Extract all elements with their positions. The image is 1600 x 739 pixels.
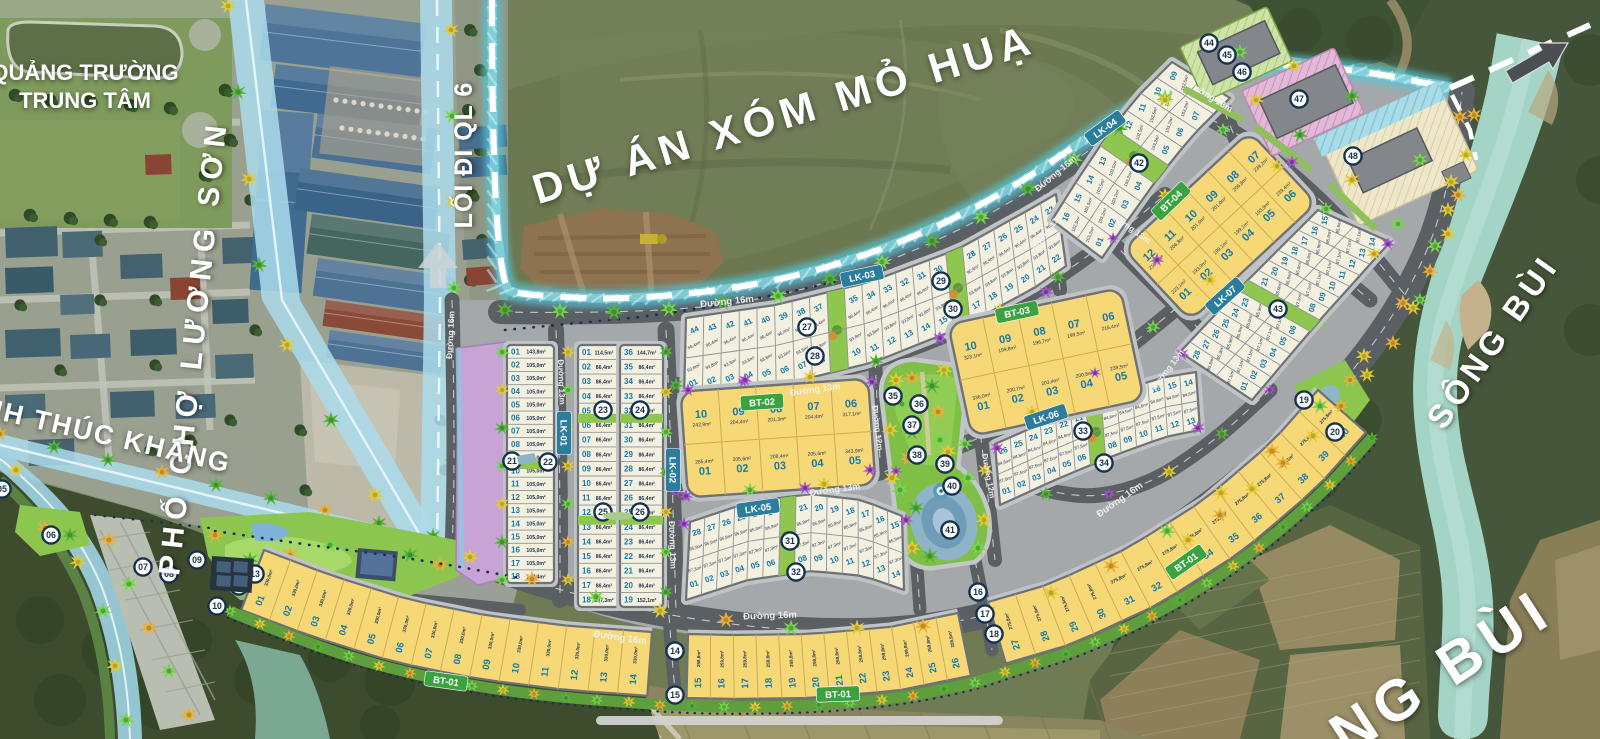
svg-text:TRUNG TÂM: TRUNG TÂM [19,88,151,113]
svg-text:152,1m²: 152,1m² [637,598,657,604]
svg-text:18: 18 [989,629,999,639]
svg-text:105,0m²: 105,0m² [526,548,546,554]
svg-text:03: 03 [1045,385,1059,399]
svg-text:16: 16 [717,678,728,689]
svg-text:105,0m²: 105,0m² [526,416,546,422]
svg-text:24: 24 [635,405,645,415]
svg-text:05: 05 [511,400,520,409]
svg-text:11: 11 [582,494,591,503]
svg-text:40: 40 [947,481,957,491]
svg-text:17: 17 [980,609,990,619]
svg-text:10: 10 [212,601,222,611]
svg-text:06: 06 [1101,310,1115,324]
svg-text:14: 14 [628,673,640,685]
svg-text:05: 05 [848,455,861,468]
svg-text:16: 16 [582,566,591,575]
svg-text:02: 02 [511,361,520,370]
svg-text:23: 23 [598,405,608,415]
svg-text:36: 36 [914,399,924,409]
svg-text:114,5m²: 114,5m² [594,350,613,356]
svg-text:86,4m²: 86,4m² [638,379,655,385]
svg-text:45: 45 [1222,50,1232,60]
svg-text:09: 09 [582,465,591,474]
svg-text:86,4m²: 86,4m² [638,394,655,400]
svg-text:LK-02: LK-02 [666,457,677,483]
svg-text:30: 30 [624,435,633,444]
svg-text:07: 07 [582,435,591,444]
svg-text:14: 14 [582,537,591,546]
svg-text:13: 13 [511,506,520,515]
svg-text:42: 42 [1134,158,1144,168]
svg-text:16: 16 [511,546,520,555]
svg-text:39: 39 [940,459,950,469]
svg-text:18: 18 [764,678,775,689]
svg-text:22: 22 [543,457,553,467]
svg-text:03: 03 [773,460,786,473]
svg-text:44: 44 [1204,38,1214,48]
svg-text:19: 19 [787,677,799,688]
svg-text:20: 20 [624,581,633,590]
svg-text:86,4m²: 86,4m² [596,423,613,429]
svg-text:105,0m²: 105,0m² [526,522,546,528]
svg-text:86,4m²: 86,4m² [638,423,655,429]
svg-text:10: 10 [964,340,978,354]
svg-text:41: 41 [945,525,955,535]
svg-text:17: 17 [511,559,520,568]
svg-text:16: 16 [973,587,983,597]
svg-text:86,4m²: 86,4m² [596,583,613,589]
svg-text:04: 04 [811,457,825,470]
svg-text:01: 01 [698,465,711,478]
svg-text:15: 15 [693,677,704,688]
svg-text:08: 08 [582,450,591,459]
svg-text:86,4m²: 86,4m² [596,452,613,458]
svg-text:02: 02 [582,363,591,372]
svg-text:86,4m²: 86,4m² [638,438,655,444]
svg-text:05: 05 [1114,370,1128,384]
svg-text:21: 21 [624,566,633,575]
svg-text:86,4m²: 86,4m² [596,481,613,487]
svg-text:19: 19 [624,596,633,605]
svg-text:144,7m²: 144,7m² [637,350,657,356]
svg-text:86,4m²: 86,4m² [596,379,613,385]
svg-text:07: 07 [138,562,148,572]
svg-text:LỐI ĐI QL 6: LỐI ĐI QL 6 [448,82,478,229]
svg-text:Đường 13m: Đường 13m [667,521,679,570]
svg-text:Đường 16m: Đường 16m [743,610,797,623]
svg-text:23: 23 [624,537,633,546]
svg-text:32: 32 [791,567,801,577]
svg-text:37: 37 [907,420,917,430]
svg-text:21: 21 [834,674,846,686]
svg-text:08: 08 [511,440,520,449]
svg-text:07: 07 [807,400,820,413]
svg-text:86,4m²: 86,4m² [596,438,613,444]
svg-text:34: 34 [624,377,633,386]
svg-text:86,4m²: 86,4m² [638,540,655,546]
svg-text:26: 26 [635,507,645,517]
svg-text:26: 26 [950,657,963,669]
svg-text:86,4m²: 86,4m² [638,569,655,575]
svg-text:259,8m²: 259,8m² [719,650,724,668]
svg-text:04: 04 [511,387,520,396]
svg-text:29: 29 [936,276,946,286]
svg-text:35: 35 [888,391,898,401]
svg-text:11: 11 [511,480,520,489]
svg-text:105,0m²: 105,0m² [526,363,546,369]
svg-text:14: 14 [511,519,520,528]
svg-text:28: 28 [624,465,633,474]
svg-text:Đường 13m: Đường 13m [556,359,567,405]
svg-text:07: 07 [1067,318,1081,332]
svg-text:10: 10 [582,479,591,488]
svg-text:BT-01: BT-01 [825,689,852,701]
svg-text:06: 06 [511,414,520,423]
svg-text:86,4m²: 86,4m² [638,496,655,502]
svg-text:105,0m²: 105,0m² [526,403,546,409]
svg-text:21: 21 [507,456,517,466]
svg-text:259,8m²: 259,8m² [696,650,701,668]
svg-text:105,0m²: 105,0m² [526,535,546,541]
svg-text:15: 15 [582,552,591,561]
svg-text:02: 02 [736,463,749,476]
svg-text:86,4m²: 86,4m² [638,452,655,458]
svg-text:259,8m²: 259,8m² [765,650,771,668]
svg-text:35: 35 [624,363,633,372]
svg-text:23: 23 [881,670,893,682]
svg-text:105,0m²: 105,0m² [526,376,546,382]
svg-text:105,0m²: 105,0m² [526,442,546,448]
svg-text:86,4m²: 86,4m² [596,554,613,560]
svg-text:06: 06 [844,398,857,411]
svg-text:09: 09 [481,658,494,670]
svg-text:05: 05 [0,484,7,494]
svg-text:03: 03 [511,374,520,383]
svg-text:86,4m²: 86,4m² [596,540,613,546]
svg-text:33: 33 [624,392,633,401]
svg-text:86,4m²: 86,4m² [638,525,655,531]
svg-text:18: 18 [582,596,591,605]
svg-text:BT-02: BT-02 [749,397,776,410]
svg-text:86,4m²: 86,4m² [596,525,613,531]
svg-text:29: 29 [624,450,633,459]
svg-text:28: 28 [810,351,820,361]
svg-text:31: 31 [785,536,795,546]
svg-text:20: 20 [810,676,822,687]
svg-text:13: 13 [598,671,610,683]
svg-text:17: 17 [740,678,751,689]
svg-text:86,4m²: 86,4m² [638,365,655,371]
svg-text:07: 07 [511,427,520,436]
svg-text:105,0m²: 105,0m² [526,495,546,501]
svg-text:86,4m²: 86,4m² [596,496,613,502]
svg-text:14: 14 [670,646,680,656]
svg-text:10: 10 [510,662,523,674]
svg-text:01: 01 [511,347,520,356]
svg-text:22: 22 [857,672,869,684]
svg-text:38: 38 [912,450,922,460]
svg-text:15: 15 [670,690,680,700]
svg-text:01: 01 [976,399,990,413]
svg-text:10: 10 [694,408,707,421]
svg-text:105,0m²: 105,0m² [526,508,546,514]
svg-text:48: 48 [1348,151,1358,161]
svg-text:02: 02 [1011,392,1025,406]
svg-text:01: 01 [582,348,591,357]
svg-text:47: 47 [1294,94,1304,104]
svg-text:19: 19 [1299,395,1309,405]
svg-text:46: 46 [1237,67,1247,77]
svg-text:43: 43 [1273,304,1283,314]
svg-text:86,4m²: 86,4m² [596,394,613,400]
svg-text:04: 04 [582,392,591,401]
svg-text:36: 36 [624,348,633,357]
svg-text:09: 09 [192,555,202,565]
svg-text:86,4m²: 86,4m² [638,554,655,560]
svg-text:09: 09 [998,332,1012,346]
svg-text:12: 12 [511,493,520,502]
svg-text:105,0m²: 105,0m² [526,429,546,435]
svg-text:27: 27 [624,479,633,488]
svg-text:26: 26 [624,494,633,503]
svg-text:33: 33 [1078,426,1088,436]
svg-text:06: 06 [46,530,56,540]
svg-text:30: 30 [948,304,958,314]
svg-text:259,8m²: 259,8m² [742,650,747,668]
svg-text:105,0m²: 105,0m² [526,389,546,395]
svg-text:LK-01: LK-01 [557,420,568,447]
svg-text:12: 12 [569,669,581,681]
svg-text:08: 08 [452,653,465,666]
svg-text:20: 20 [1330,427,1340,437]
svg-text:105,0m²: 105,0m² [526,561,546,567]
svg-text:08: 08 [1032,325,1046,339]
svg-text:17: 17 [582,581,591,590]
svg-text:QUẢNG TRƯỜNG: QUẢNG TRƯỜNG [0,60,179,85]
svg-text:15: 15 [511,533,520,542]
svg-text:143,8m²: 143,8m² [526,350,546,356]
svg-text:03: 03 [582,377,591,386]
svg-text:86,4m²: 86,4m² [596,467,613,473]
svg-text:22: 22 [624,552,633,561]
svg-text:27: 27 [802,322,812,332]
svg-text:34: 34 [1099,458,1109,468]
svg-text:86,4m²: 86,4m² [638,467,655,473]
svg-text:86,4m²: 86,4m² [638,481,655,487]
svg-text:105,0m²: 105,0m² [526,482,546,488]
svg-text:86,4m²: 86,4m² [596,365,613,371]
svg-text:86,4m²: 86,4m² [596,569,613,575]
svg-text:86,4m²: 86,4m² [638,583,655,589]
